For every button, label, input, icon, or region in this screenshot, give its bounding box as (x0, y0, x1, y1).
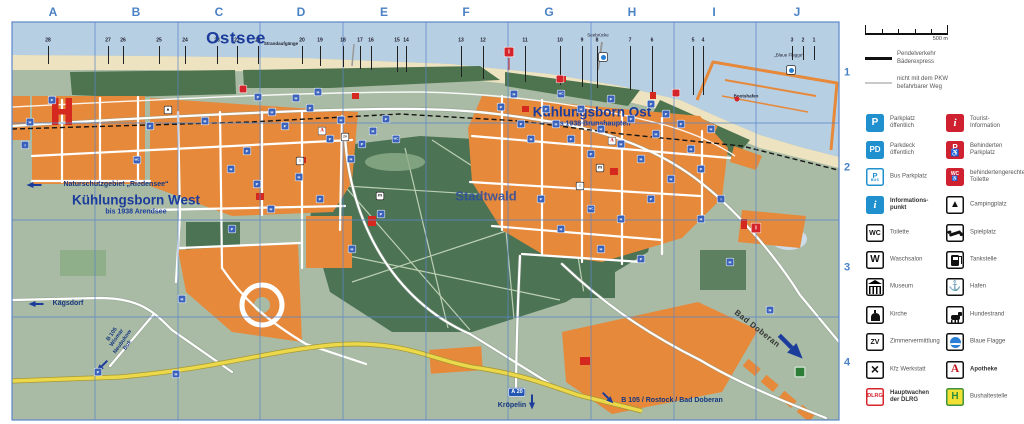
parking-icon: P (498, 104, 505, 111)
legend-hafen-icon: ⚓ (946, 278, 964, 296)
kroepelin-label: Kröpelin (498, 402, 526, 410)
beach-access-number: 11 (522, 39, 527, 44)
bus-stop-icon: H (338, 117, 345, 124)
legend-label-museum: Museum (890, 283, 946, 290)
legend-pbus-icon: PBUS (866, 168, 884, 186)
naturschutzgebiet-arrow-icon (27, 182, 42, 188)
bus-stop-icon: H (598, 246, 605, 253)
dlrg-station-icon (240, 86, 247, 93)
legend-wcdis-icon: WC♿ (946, 168, 964, 186)
parking-icon: P (307, 105, 314, 112)
kuehlungsborn-west-title: Kühlungsborn West (72, 193, 200, 208)
parking-icon: P (95, 369, 102, 376)
bus-stop-icon: H (578, 106, 585, 113)
beach-access-number: 6 (651, 39, 654, 44)
legend-label-kfz: Kfz Werkstatt (890, 366, 946, 373)
beach-access-tick (185, 46, 186, 64)
bus-stop-icon: H (553, 121, 560, 128)
beach-access-number: 19 (317, 39, 323, 44)
scale-bar (865, 24, 948, 35)
beach-access-tick (108, 46, 109, 64)
beach-access-tick (360, 46, 361, 69)
kroepelin-arrow-icon (529, 395, 535, 410)
grid-column-C: C (215, 6, 224, 18)
bus-stop-icon: H (269, 109, 276, 116)
beach-access-number: 7 (629, 39, 632, 44)
beach-access-number: 5 (692, 39, 695, 44)
parking-icon: P (628, 116, 635, 123)
legend-label-zv: Zimmervermittlung (890, 338, 946, 345)
tourist-info-icon: i (752, 224, 761, 233)
blue-flag-icon (787, 66, 795, 74)
museum-icon: m (377, 193, 384, 200)
legend-p-icon: P (866, 114, 884, 132)
b105-ost-arrow-icon (601, 391, 616, 406)
tourist-info-icon: i (505, 48, 514, 57)
parking-icon: P (648, 196, 655, 203)
scale-tick (898, 29, 899, 33)
legend-pdis-icon: P♿ (946, 141, 964, 159)
beach-access-number: 15 (394, 39, 400, 44)
legend-label-flag: Blaue Flagge (970, 338, 1024, 345)
parking-icon: P (282, 123, 289, 130)
bus-stop-icon: H (688, 146, 695, 153)
beach-access-tick (258, 46, 259, 64)
beach-access-tick (123, 46, 124, 64)
legend-label-fuel: Tankstelle (970, 256, 1024, 263)
beach-access-tick (320, 46, 321, 66)
church-icon: ⌂ (297, 158, 304, 165)
bus-stop-icon: H (349, 246, 356, 253)
bus-stop-icon: H (668, 176, 675, 183)
bus-stop-icon: H (618, 216, 625, 223)
legend-flag-icon (946, 333, 964, 351)
legend-label-dlrg: Hauptwachen der DLRG (890, 390, 946, 404)
bad-doberan-arrow-icon (775, 331, 808, 364)
bus-stop-icon: H (767, 307, 774, 314)
beach-access-number: 10 (557, 39, 563, 44)
legend-label-w: Waschsalon (890, 256, 946, 263)
pharmacy-icon: A (319, 128, 326, 135)
parking-icon: P (678, 121, 685, 128)
beach-access-tick (397, 46, 398, 72)
beach-access-tick (406, 46, 407, 72)
legend-label-tourist: Tourist- Information (970, 116, 1024, 130)
parking-icon: P (255, 94, 262, 101)
cycle-route-icon (795, 367, 806, 378)
bus-stop-icon: H (173, 371, 180, 378)
legend-label-church: Kirche (890, 311, 946, 318)
legend-label-wcdis: behindertengerechte Toilette (970, 170, 1024, 184)
legend-info-icon: i (866, 196, 884, 214)
beach-access-number: 3 (791, 39, 794, 44)
naturschutzgebiet-label: Naturschutzgebiet „Riedensee“ (63, 181, 168, 189)
bus-stop-icon: H (528, 136, 535, 143)
beach-access-number: 1 (813, 39, 816, 44)
bus-stop-icon: H (558, 226, 565, 233)
beach-access-tick (597, 46, 598, 88)
parking-icon: P (359, 141, 366, 148)
legend-label-play: Spielplatz (970, 229, 1024, 236)
beach-access-number: 20 (299, 39, 305, 44)
bus-stop-icon: H (511, 91, 518, 98)
grid-column-F: F (462, 6, 469, 18)
wc-icon: WC (134, 157, 141, 164)
bus-stop-icon: H (179, 296, 186, 303)
parking-icon: P (543, 106, 550, 113)
b105-ost-label: B 105 / Rostock / Bad Doberan (621, 397, 723, 405)
bus-stop-icon: H (27, 119, 34, 126)
beach-access-number: 12 (480, 39, 486, 44)
legend-label-apo: Apotheke (970, 366, 1024, 373)
beach-access-tick (582, 46, 583, 87)
kaegsdorf-arrow-icon (29, 301, 44, 307)
beach-access-tick (302, 46, 303, 64)
map-overlay: ABCDEFGHIJ1234Strandaufgänge282726252423… (0, 0, 1024, 424)
grid-column-G: G (544, 6, 553, 18)
wc-icon: WC (393, 136, 400, 143)
beach-access-number: 18 (340, 39, 346, 44)
legend-apo-icon: A (946, 361, 964, 379)
legend-church-icon (866, 306, 884, 324)
beach-access-tick (237, 46, 238, 64)
grid-column-H: H (628, 6, 637, 18)
bus-stop-icon: H (653, 131, 660, 138)
beach-access-number: 28 (45, 39, 51, 44)
bus-stop-icon: H (202, 118, 209, 125)
parking-icon: P (327, 136, 334, 143)
bus-stop-icon: H (296, 174, 303, 181)
beach-access-tick (703, 46, 704, 95)
grid-column-B: B (132, 6, 141, 18)
beach-access-tick (525, 46, 526, 82)
legend-tourist-icon: i (946, 114, 964, 132)
bad-doberan-label: Bad Doberan (733, 309, 781, 349)
kuehlungsborn-west-subtitle: bis 1938 Arendsee (72, 208, 200, 216)
parking-icon: P (317, 196, 324, 203)
scale-tick (915, 29, 916, 33)
parking-icon: P (49, 97, 56, 104)
no-car-path-label: nicht mit dem PKW befahrbarer Weg (897, 76, 1007, 91)
beach-access-number: 14 (403, 39, 409, 44)
legend-label-p: Parkplatz öffentlich (890, 116, 946, 130)
grid-column-D: D (297, 6, 306, 18)
parking-icon: P (608, 96, 615, 103)
museum-icon: m (597, 165, 604, 172)
pharmacy-icon: A (609, 138, 616, 145)
legend-dog-icon (946, 306, 964, 324)
legend-label-pbus: Bus Parkplatz (890, 173, 946, 180)
info-point-icon: i (22, 142, 29, 149)
bus-stop-icon: H (293, 95, 300, 102)
parking-icon: P (638, 256, 645, 263)
legend-camp-icon: ▲ (946, 196, 964, 214)
beach-access-number: 24 (182, 39, 188, 44)
parking-icon: P (568, 136, 575, 143)
room-agency-icon: ZV (342, 134, 349, 141)
bus-stop-icon: H (638, 156, 645, 163)
legend-label-info: Informations- punkt (890, 198, 946, 212)
parking-icon: P (254, 181, 261, 188)
kuehlungsborn-west-label: Kühlungsborn Westbis 1938 Arendsee (72, 193, 200, 216)
a20-label: A 20 (508, 388, 525, 397)
legend-museum-icon (866, 278, 884, 296)
beach-access-tick (693, 46, 694, 95)
parking-icon: P (244, 148, 251, 155)
beach-access-tick (461, 46, 462, 77)
grid-column-I: I (712, 6, 715, 18)
parking-icon: P (588, 151, 595, 158)
bus-stop-icon: H (315, 89, 322, 96)
bus-stop-icon: H (727, 259, 734, 266)
scale-tick (947, 25, 948, 33)
beach-access-tick (48, 46, 49, 64)
parking-icon: P (538, 196, 545, 203)
blaue-flagge-note-label: „Blaue Flagge“ (774, 54, 804, 59)
bus-stop-icon: H (598, 126, 605, 133)
beach-access-tick (217, 46, 218, 64)
parking-icon: P (698, 166, 705, 173)
bus-stop-icon: H (618, 141, 625, 148)
dlrg-station-icon (557, 76, 564, 83)
legend-label-dog: Hundestrand (970, 311, 1024, 318)
scale-tick (931, 29, 932, 33)
legend-bus-icon: H (946, 388, 964, 406)
beach-access-number: 25 (156, 39, 162, 44)
legend-label-wc: Toilette (890, 229, 946, 236)
legend-play-icon (946, 224, 964, 242)
bus-stop-icon: H (268, 206, 275, 213)
seebruecke-label: Seebrücke (587, 34, 609, 39)
legend-kfz-icon: × (866, 361, 884, 379)
bus-stop-icon: H (708, 126, 715, 133)
beach-access-tick (814, 46, 815, 60)
city-map-page: ABCDEFGHIJ1234Strandaufgänge282726252423… (0, 0, 1024, 424)
grid-row-4: 4 (844, 358, 850, 369)
grid-column-A: A (49, 6, 58, 18)
grid-column-E: E (380, 6, 388, 18)
legend-pd-icon: PD (866, 141, 884, 159)
legend-zv-icon: ZV (866, 333, 884, 351)
beach-access-number: 26 (120, 39, 126, 44)
parking-icon: P (147, 123, 154, 130)
legend-fuel-icon (946, 251, 964, 269)
grid-row-1: 1 (844, 68, 850, 79)
info-point-icon: i (718, 196, 725, 203)
wc-icon: WC (558, 91, 565, 98)
scale-label: 500 m (865, 37, 948, 43)
beach-access-number: 13 (458, 39, 464, 44)
ostsee-label: Ostsee (206, 30, 266, 47)
bus-stop-icon: H (370, 128, 377, 135)
kaegsdorf-label: Kägsdorf (53, 300, 84, 308)
baederexpress-label: Pendelverkehr Bäderexpress (897, 51, 1007, 66)
scale-tick (882, 29, 883, 33)
wc-icon: WC (588, 206, 595, 213)
legend-label-hafen: Hafen (970, 283, 1024, 290)
parking-icon: P (663, 111, 670, 118)
beach-access-number: 9 (581, 39, 584, 44)
beach-access-tick (343, 46, 344, 67)
b105-west-label: B 105 Wismar Neubukow Buk (102, 321, 139, 358)
beach-access-number: 2 (802, 39, 805, 44)
parking-icon: P (229, 226, 236, 233)
parking-icon: P (383, 116, 390, 123)
legend-label-pd: Parkdeck öffentlich (890, 143, 946, 157)
harbor-icon (735, 97, 740, 102)
bus-stop-icon: H (228, 166, 235, 173)
blue-flag-icon (599, 53, 607, 61)
legend-label-bus: Bushaltestelle (970, 393, 1024, 400)
baederexpress-line-sample (865, 57, 892, 60)
beach-access-tick (159, 46, 160, 64)
beach-access-number: 8 (596, 39, 599, 44)
bus-stop-icon: H (348, 156, 355, 163)
parking-icon: P (518, 121, 525, 128)
beach-access-number: 27 (105, 39, 111, 44)
grid-row-3: 3 (844, 263, 850, 274)
beach-access-number: 4 (702, 39, 705, 44)
church-icon: ⌂ (577, 183, 584, 190)
grid-row-2: 2 (844, 163, 850, 174)
parking-icon: P (648, 101, 655, 108)
beach-access-tick (371, 46, 372, 70)
beach-access-number: 16 (368, 39, 374, 44)
beach-access-tick (483, 46, 484, 79)
parking-icon: P (378, 211, 385, 218)
legend-label-pdis: Behinderten Parkplatz (970, 143, 1024, 157)
beach-access-number: 17 (357, 39, 363, 44)
beach-access-tick (630, 46, 631, 90)
legend-wc-icon: WC (866, 224, 884, 242)
beach-access-label: Strandaufgänge (264, 42, 298, 47)
no-car-path-line-sample (865, 82, 892, 84)
dlrg-station-icon (673, 90, 680, 97)
bus-stop-icon: H (698, 216, 705, 223)
legend-w-icon: W (866, 251, 884, 269)
scale-tick (865, 25, 866, 33)
stadtwald-label: Stadtwald (455, 190, 516, 203)
camping-icon: ▲ (165, 107, 172, 114)
legend-dlrg-icon: DLRG (866, 388, 884, 406)
beach-access-tick (652, 46, 653, 92)
grid-column-J: J (794, 6, 801, 18)
legend-label-camp: Campingplatz (970, 201, 1024, 208)
